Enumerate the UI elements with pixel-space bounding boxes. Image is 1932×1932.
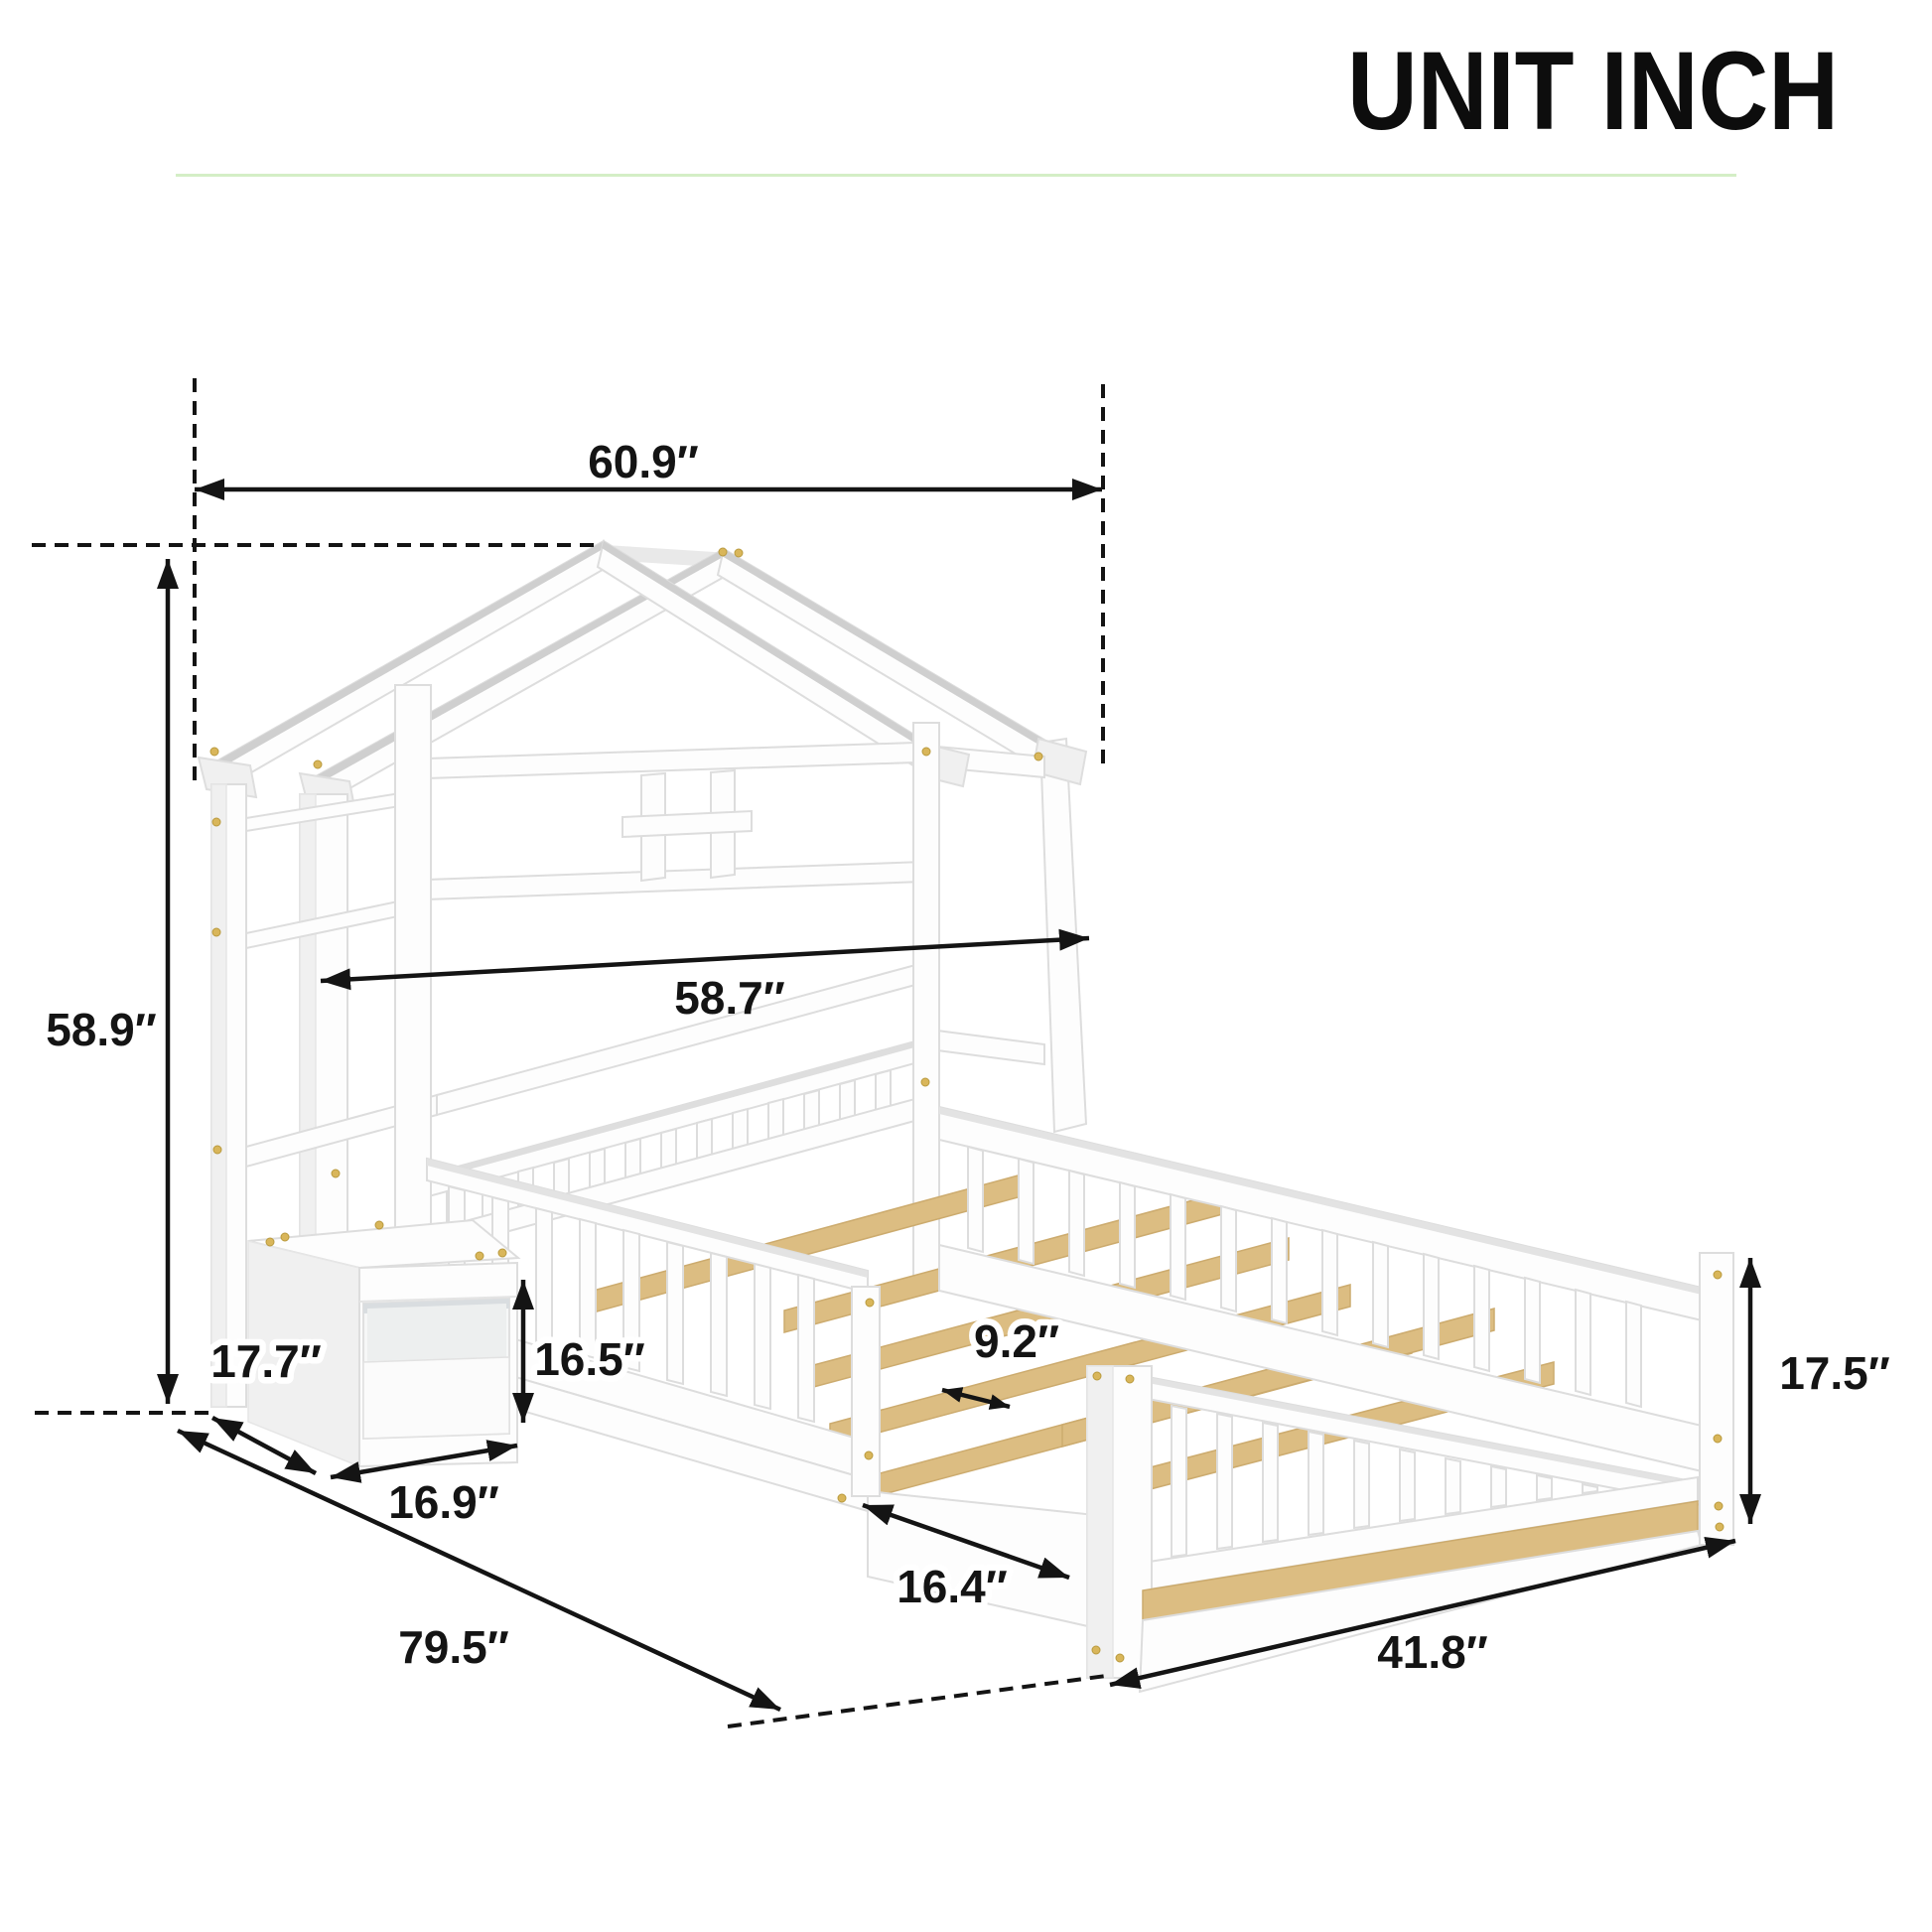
svg-text:16.9″: 16.9″: [388, 1476, 499, 1528]
svg-text:60.9″: 60.9″: [588, 436, 699, 487]
svg-text:58.9″: 58.9″: [46, 1004, 157, 1055]
svg-text:79.5″: 79.5″: [398, 1621, 509, 1673]
svg-text:58.7″: 58.7″: [674, 972, 785, 1024]
svg-text:UNIT INCH: UNIT INCH: [1347, 29, 1839, 153]
svg-text:9.2″: 9.2″: [974, 1315, 1059, 1367]
svg-text:17.7″: 17.7″: [210, 1335, 322, 1387]
svg-text:41.8″: 41.8″: [1377, 1626, 1488, 1678]
svg-text:16.4″: 16.4″: [897, 1561, 1008, 1612]
svg-text:17.5″: 17.5″: [1779, 1347, 1890, 1399]
svg-text:16.5″: 16.5″: [534, 1333, 645, 1385]
